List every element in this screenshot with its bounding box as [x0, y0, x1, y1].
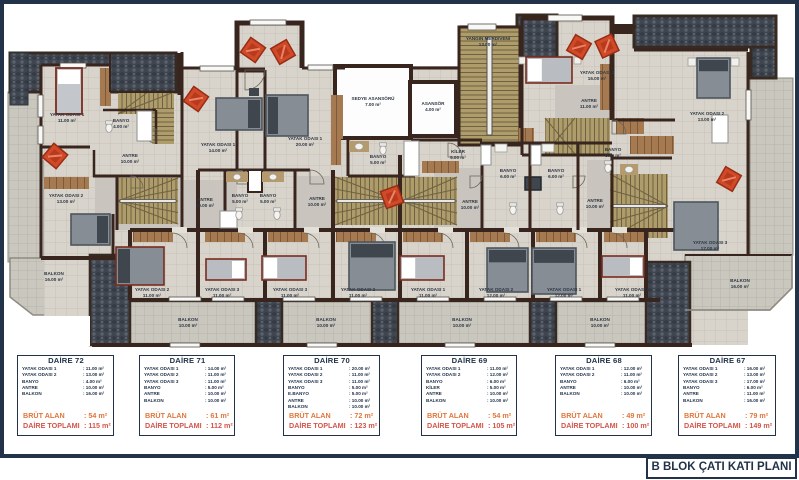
svg-text:5.00 m²: 5.00 m²	[450, 155, 466, 160]
svg-text:12.00 m²: 12.00 m²	[555, 293, 574, 298]
svg-text:BANYO: BANYO	[500, 168, 517, 173]
svg-text:YATAK ODASI 1: YATAK ODASI 1	[201, 142, 236, 147]
svg-text:BANYO: BANYO	[232, 193, 249, 198]
svg-text:13.00 m²: 13.00 m²	[57, 199, 76, 204]
svg-text:16.00 m²: 16.00 m²	[588, 76, 607, 81]
svg-text:YATAK ODASI 2: YATAK ODASI 2	[341, 287, 376, 292]
svg-text:11.00 m²: 11.00 m²	[143, 293, 162, 298]
svg-text:7.00 m²: 7.00 m²	[365, 102, 381, 107]
svg-text:16.00 m²: 16.00 m²	[731, 284, 750, 289]
svg-text:16.00 m²: 16.00 m²	[45, 277, 64, 282]
svg-text:BANYO: BANYO	[548, 168, 565, 173]
svg-text:6.00 m²: 6.00 m²	[548, 174, 564, 179]
svg-text:11.00 m²: 11.00 m²	[281, 293, 300, 298]
svg-text:YANGIN MERDİVENİ: YANGIN MERDİVENİ	[466, 35, 510, 41]
svg-text:10.00 m²: 10.00 m²	[308, 202, 327, 207]
svg-text:BANYO: BANYO	[370, 154, 387, 159]
svg-text:6.00 m²: 6.00 m²	[605, 153, 621, 158]
svg-text:ANTRE: ANTRE	[122, 153, 138, 158]
svg-text:YATAK ODASI 1: YATAK ODASI 1	[411, 287, 446, 292]
svg-text:14.00 m²: 14.00 m²	[209, 148, 228, 153]
svg-text:20.00 m²: 20.00 m²	[296, 142, 315, 147]
svg-text:11.00 m²: 11.00 m²	[349, 293, 368, 298]
svg-text:10.00 m²: 10.00 m²	[586, 204, 605, 209]
svg-text:BALKON: BALKON	[452, 317, 472, 322]
svg-text:4.00 m²: 4.00 m²	[425, 107, 441, 112]
svg-text:YATAK ODASI 3: YATAK ODASI 3	[273, 287, 308, 292]
svg-text:ANTRE: ANTRE	[197, 197, 213, 202]
svg-text:12.00 m²: 12.00 m²	[487, 293, 506, 298]
svg-text:10.00 m²: 10.00 m²	[179, 323, 198, 328]
svg-text:10.00 m²: 10.00 m²	[453, 323, 472, 328]
svg-text:BALKON: BALKON	[178, 317, 198, 322]
svg-text:10.00 m²: 10.00 m²	[121, 159, 140, 164]
svg-text:BALKON: BALKON	[730, 278, 750, 283]
svg-text:10.00 m²: 10.00 m²	[317, 323, 336, 328]
svg-text:17.00 m²: 17.00 m²	[701, 246, 720, 251]
svg-text:10.00 m²: 10.00 m²	[461, 205, 480, 210]
svg-text:13.00 m²: 13.00 m²	[479, 42, 498, 47]
svg-text:BALKON: BALKON	[590, 317, 610, 322]
svg-text:6.00 m²: 6.00 m²	[500, 174, 516, 179]
svg-text:5.00 m²: 5.00 m²	[370, 160, 386, 165]
svg-text:SEDYE ASANSÖRÜ: SEDYE ASANSÖRÜ	[352, 95, 396, 101]
svg-text:ANTRE: ANTRE	[587, 198, 603, 203]
svg-text:ANTRE: ANTRE	[581, 98, 597, 103]
svg-text:ANTRE: ANTRE	[309, 196, 325, 201]
svg-text:11.00 m²: 11.00 m²	[580, 104, 599, 109]
svg-text:5.00 m²: 5.00 m²	[260, 199, 276, 204]
svg-text:YATAK ODASI 2: YATAK ODASI 2	[135, 287, 170, 292]
svg-text:KİLER: KİLER	[451, 148, 465, 154]
svg-text:10.00 m²: 10.00 m²	[591, 323, 610, 328]
svg-text:YATAK ODASI 2: YATAK ODASI 2	[615, 287, 650, 292]
svg-text:YATAK ODASI 1: YATAK ODASI 1	[580, 70, 615, 75]
svg-text:13.00 m²: 13.00 m²	[698, 117, 717, 122]
svg-text:10.00 m²: 10.00 m²	[196, 203, 215, 208]
svg-text:YATAK ODASI 3: YATAK ODASI 3	[205, 287, 240, 292]
svg-text:11.00 m²: 11.00 m²	[623, 293, 642, 298]
svg-text:ASANSÖR: ASANSÖR	[422, 100, 446, 106]
svg-text:YATAK ODASI 2: YATAK ODASI 2	[49, 193, 84, 198]
svg-text:BANYO: BANYO	[260, 193, 277, 198]
svg-text:BANYO: BANYO	[113, 118, 130, 123]
svg-text:YATAK ODASI 3: YATAK ODASI 3	[693, 240, 728, 245]
svg-text:YATAK ODASI 1: YATAK ODASI 1	[547, 287, 582, 292]
svg-text:BANYO: BANYO	[605, 147, 622, 152]
svg-text:5.00 m²: 5.00 m²	[232, 199, 248, 204]
svg-text:BALKON: BALKON	[44, 271, 64, 276]
svg-text:ANTRE: ANTRE	[462, 199, 478, 204]
svg-text:BALKON: BALKON	[316, 317, 336, 322]
svg-text:YATAK ODASI 1: YATAK ODASI 1	[50, 112, 85, 117]
svg-text:YATAK ODASI 1: YATAK ODASI 1	[288, 136, 323, 141]
svg-text:11.00 m²: 11.00 m²	[419, 293, 438, 298]
svg-text:YATAK ODASI 2: YATAK ODASI 2	[479, 287, 514, 292]
svg-text:11.00 m²: 11.00 m²	[213, 293, 232, 298]
svg-text:11.00 m²: 11.00 m²	[58, 118, 77, 123]
svg-text:YATAK ODASI 2: YATAK ODASI 2	[690, 111, 725, 116]
svg-text:4.00 m²: 4.00 m²	[113, 124, 129, 129]
